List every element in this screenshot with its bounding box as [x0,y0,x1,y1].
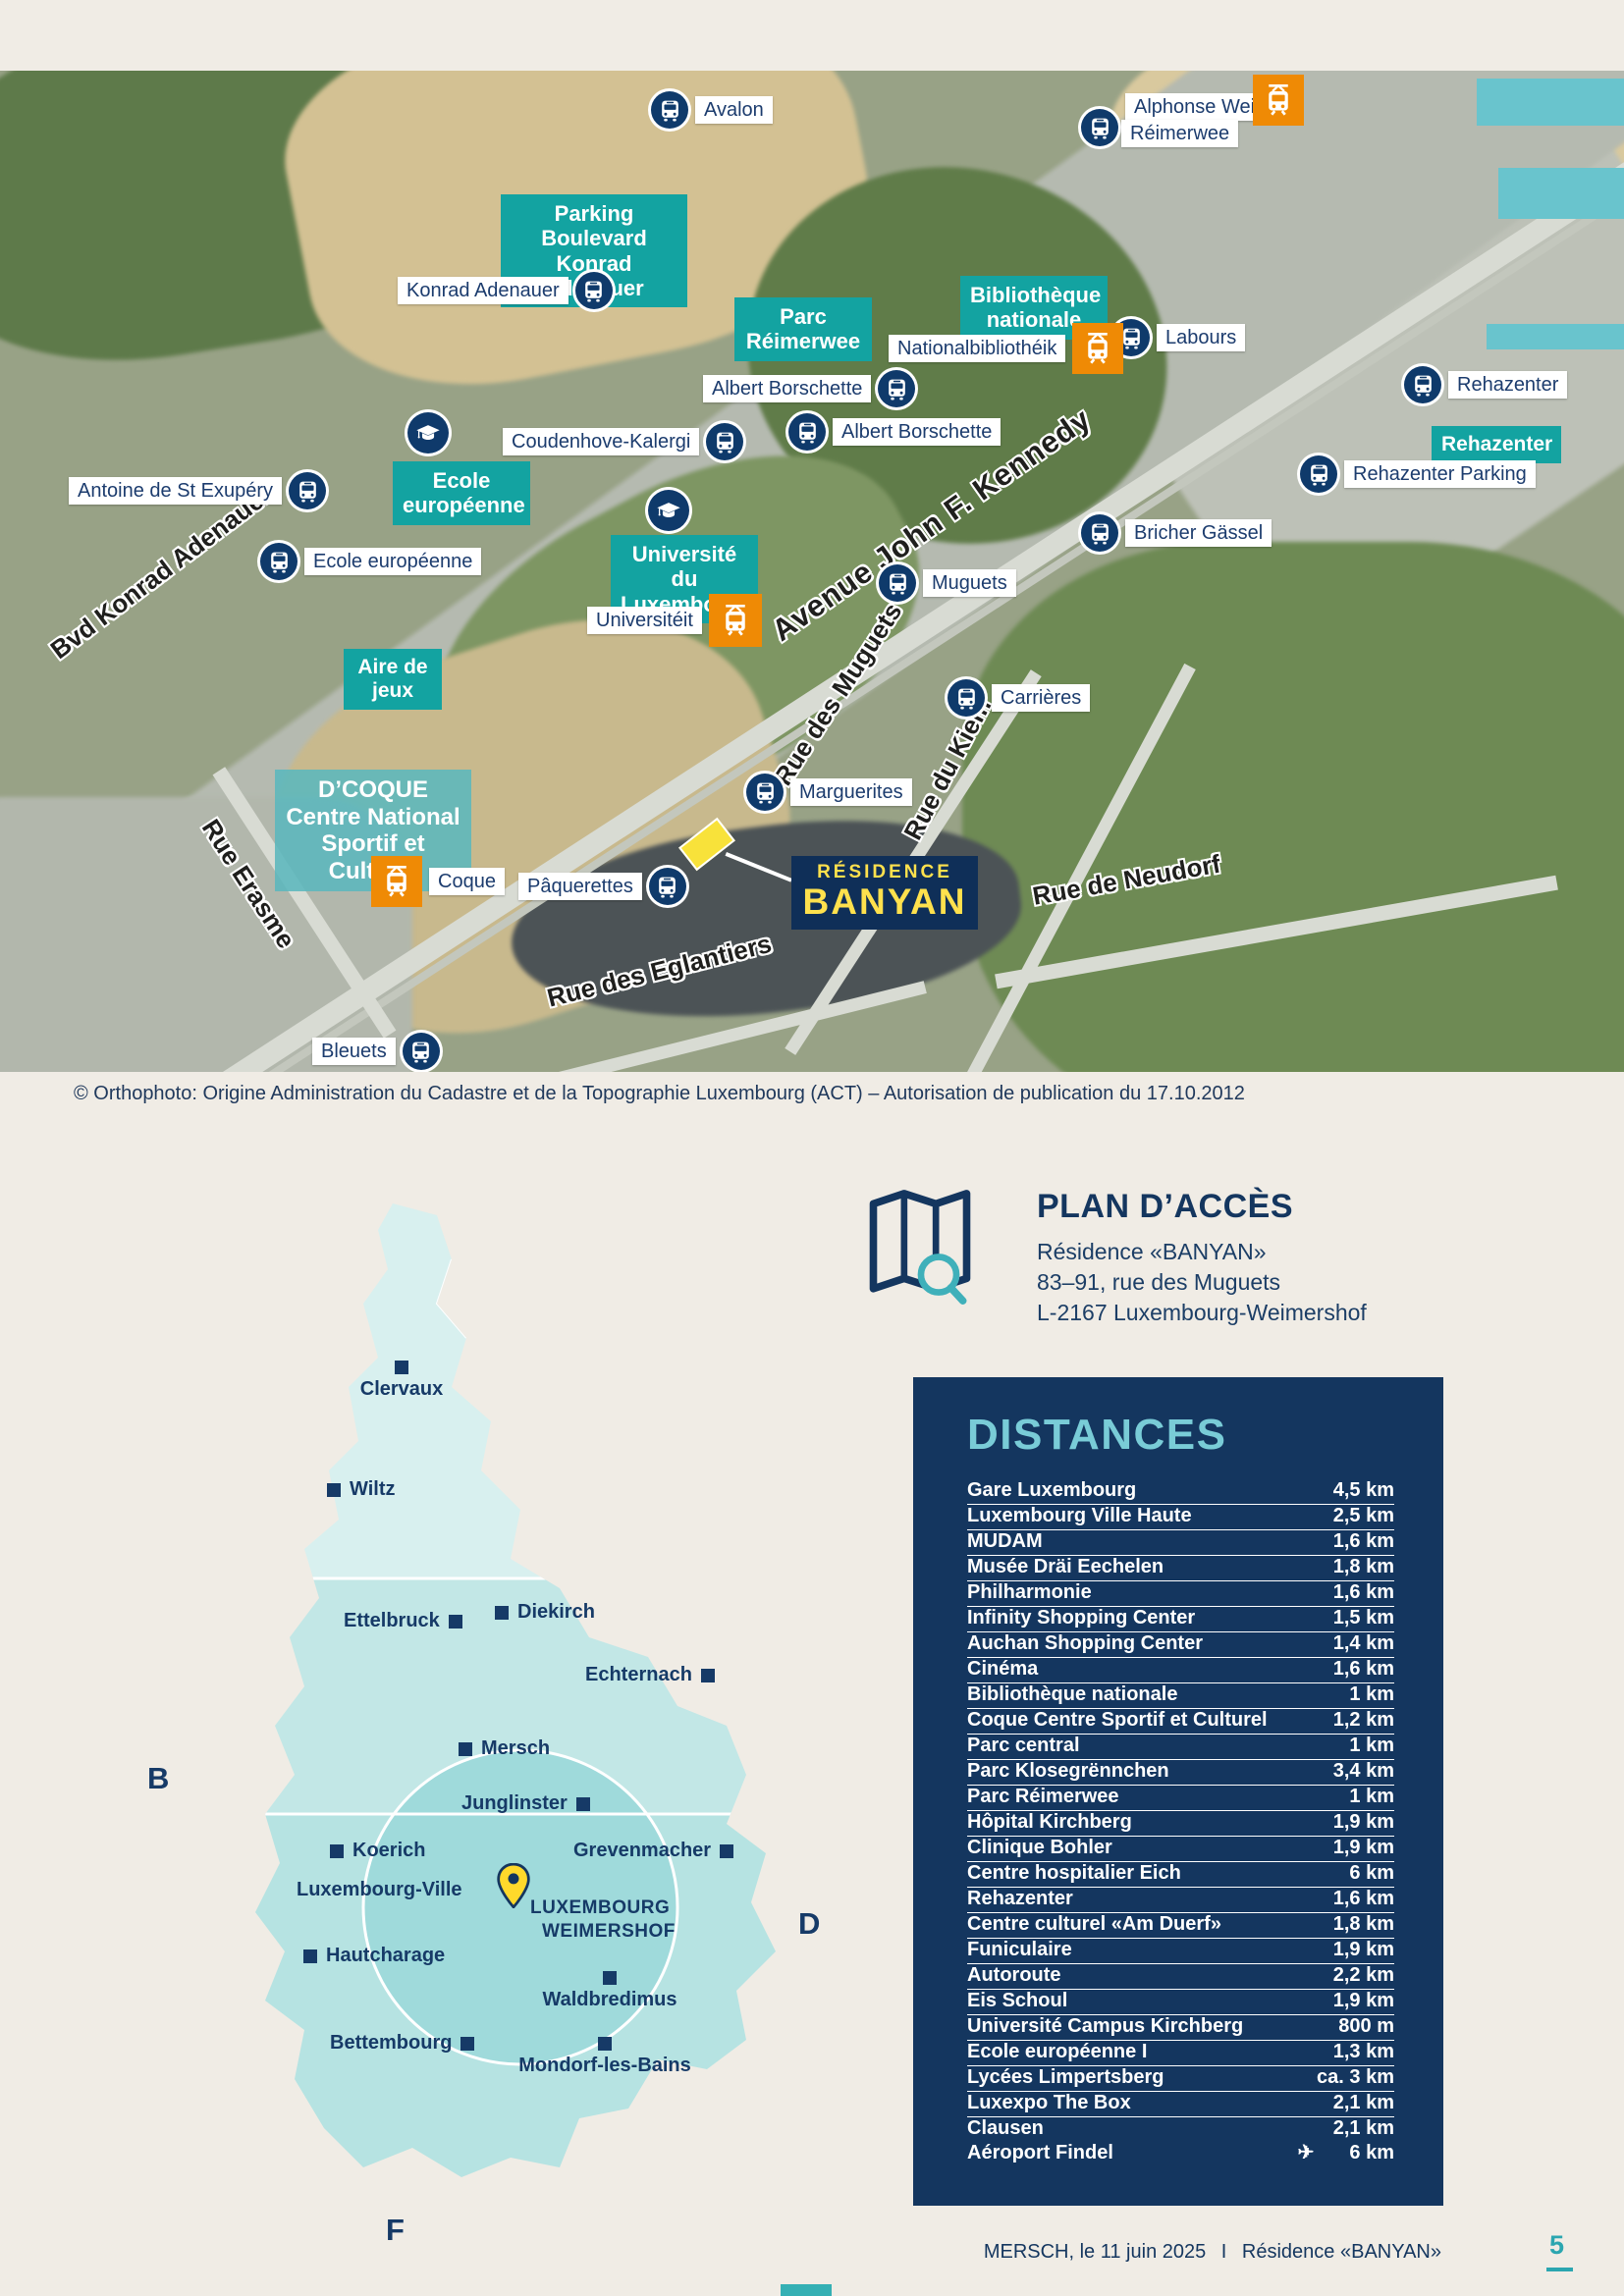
folded-map-icon [864,1184,976,1311]
bus-stop-labours: Labours [1112,319,1245,356]
distance-value: 1,9 km [1333,1812,1394,1833]
stop-label-reimerwee: Réimerwee [1121,120,1238,147]
distance-value: 1,8 km [1333,1557,1394,1577]
bus-stop-avalon: Avalon [651,91,773,129]
distance-name: Eis Schoul [967,1991,1067,2011]
city-mersch: Mersch [459,1737,550,1760]
bus-stop-albert-borschette-2: Albert Borschette [788,413,1001,451]
distance-name: Gare Luxembourg [967,1480,1136,1501]
bus-icon [879,564,916,602]
bus-icon [878,370,915,407]
stop-label: Nationalbibliothéik [889,335,1065,362]
distance-row: Université Campus Kirchberg 800 m [967,2015,1394,2041]
plane-icon: ✈ [1298,2143,1315,2163]
distance-row: Cinéma 1,6 km [967,1658,1394,1683]
city-waldbredimus: Waldbredimus [543,1971,677,2011]
place-line: Ecole [403,468,520,493]
bus-icon [1081,109,1118,146]
city-grevenmacher: Grevenmacher [573,1840,733,1862]
city-bettembourg: Bettembourg [330,2032,474,2055]
highlight-line1: LUXEMBOURG [530,1896,676,1920]
bus-stop-paquerettes: Pâquerettes [518,868,686,905]
distance-value: 2,5 km [1333,1506,1394,1526]
tram-icon [1072,323,1123,374]
teal-decoration [1487,324,1624,349]
city-label: Bettembourg [330,2032,452,2055]
stop-label: Universitéit [587,607,702,634]
footer-residence: Résidence «BANYAN» [1242,2241,1441,2263]
distances-table: DISTANCES Gare Luxembourg 4,5 km Luxembo… [913,1377,1443,2206]
stop-label: Albert Borschette [703,375,871,402]
distance-value: 1,6 km [1333,1659,1394,1680]
bus-stop-bleuets: Bleuets [312,1033,440,1070]
country-letter-france: F [386,2213,405,2248]
city-diekirch: Diekirch [495,1601,595,1624]
distance-value: 2,1 km [1333,2118,1394,2139]
distance-row: Ecole européenne I 1,3 km [967,2041,1394,2066]
city-square-icon [495,1606,509,1620]
distance-row: Parc central 1 km [967,1735,1394,1760]
bus-stop-carrieres: Carrières [947,679,1090,717]
distance-row: Luxexpo The Box 2,1 km [967,2092,1394,2117]
city-label: Junglinster [461,1792,568,1815]
distance-name: Ecole européenne I [967,2042,1147,2062]
bus-stop-rehazenter: Rehazenter [1404,366,1567,403]
distance-row: Auchan Shopping Center 1,4 km [967,1632,1394,1658]
stop-label: Coudenhove-Kalergi [503,428,699,455]
distance-row: Lycées Limpertsberg ca. 3 km [967,2066,1394,2092]
distances-title: DISTANCES [967,1411,1394,1460]
distance-name: Musée Dräi Eechelen [967,1557,1164,1577]
bus-stop-rehazenter-parking: Rehazenter Parking [1300,455,1536,493]
distance-value: 1 km [1349,1684,1394,1705]
distance-value: 1 km [1349,1787,1394,1807]
city-square-icon [603,1971,617,1985]
distance-value: 1,6 km [1333,1531,1394,1552]
distance-value: 1,5 km [1333,1608,1394,1629]
access-line3: L-2167 Luxembourg-Weimershof [1037,1298,1367,1328]
bus-stop-ecole-europeenne: Ecole européenne [260,543,481,580]
bus-icon [1404,366,1441,403]
distance-value: 800 m [1338,2016,1394,2037]
distance-row-airport: Aéroport Findel ✈ 6 km [967,2142,1394,2166]
stop-label: Muguets [923,569,1016,597]
distance-name: Parc Klosegrënnchen [967,1761,1169,1782]
city-square-icon [327,1483,341,1497]
city-label: Koerich [352,1840,425,1862]
distance-value: 1,9 km [1333,1991,1394,2011]
distance-name: Clausen [967,2118,1044,2139]
stop-label: Labours [1157,324,1245,351]
bus-icon [1081,514,1118,552]
access-line2: 83–91, rue des Muguets [1037,1267,1367,1298]
place-line: Bibliothèque [970,283,1098,307]
tram-icon [1253,75,1304,126]
city-echternach: Echternach [585,1664,715,1686]
city-square-icon [459,1742,472,1756]
distance-value: 2,2 km [1333,1965,1394,1986]
distance-value: 1,4 km [1333,1633,1394,1654]
bus-icon [706,423,743,460]
distances-rows: Gare Luxembourg 4,5 km Luxembourg Ville … [967,1479,1394,2142]
footer-date: MERSCH, le 11 juin 2025 [984,2241,1206,2263]
distance-row: Coque Centre Sportif et Culturel 1,2 km [967,1709,1394,1735]
distance-name: Funiculaire [967,1940,1072,1960]
city-square-icon [449,1615,462,1629]
place-line: jeux [353,679,432,703]
distance-value: 2,1 km [1333,2093,1394,2113]
bus-icon [575,272,613,309]
bus-stop-antoine-st-exupery: Antoine de St Exupéry [69,472,326,509]
city-wiltz: Wiltz [327,1478,395,1501]
distance-name: MUDAM [967,1531,1043,1552]
bus-icon [788,413,826,451]
city-label: Waldbredimus [542,1989,677,2011]
stop-label: Carrières [992,684,1090,712]
distance-name: Parc Réimerwee [967,1787,1119,1807]
distance-name: Infinity Shopping Center [967,1608,1195,1629]
place-line: Parc [744,304,862,329]
footer: MERSCH, le 11 juin 2025 I Résidence «BAN… [974,2241,1441,2264]
distance-name: Cinéma [967,1659,1038,1680]
stop-label: Antoine de St Exupéry [69,477,282,505]
weimershof-pin-icon [497,1863,530,1908]
distance-value: 1,9 km [1333,1940,1394,1960]
distance-row: Philharmonie 1,6 km [967,1581,1394,1607]
distance-value: 6 km [1349,1863,1394,1884]
city-label: Mondorf-les-Bains [518,2055,691,2077]
distance-row: Gare Luxembourg 4,5 km [967,1479,1394,1505]
stop-label: Albert Borschette [833,418,1001,446]
distance-name: Lycées Limpertsberg [967,2067,1164,2088]
footer-separator: I [1221,2241,1227,2263]
distance-value: 1 km [1349,1735,1394,1756]
city-square-icon [395,1361,408,1374]
distance-name: Philharmonie [967,1582,1092,1603]
country-letter-belgium: B [147,1761,169,1796]
distance-name: Centre hospitalier Eich [967,1863,1181,1884]
city-label: Echternach [585,1664,692,1686]
place-line: Parking Boulevard [511,201,677,251]
distance-value: 1,6 km [1333,1582,1394,1603]
distance-name: Clinique Bohler [967,1838,1112,1858]
bus-stop-albert-borschette-1: Albert Borschette [703,370,915,407]
teal-decoration [1477,79,1624,126]
distance-name: Auchan Shopping Center [967,1633,1203,1654]
bus-icon [746,774,784,811]
city-label: Ettelbruck [344,1610,440,1632]
distance-name: Centre culturel «Am Duerf» [967,1914,1221,1935]
city-label: Hautcharage [326,1945,445,1967]
access-title: PLAN D’ACCÈS [1037,1188,1293,1226]
stop-label: Marguerites [790,778,912,806]
city-luxembourg-ville: Luxembourg-Ville [297,1879,462,1901]
distance-name: Rehazenter [967,1889,1073,1909]
country-letter-germany: D [798,1906,820,1942]
distance-row: Clausen 2,1 km [967,2117,1394,2142]
teal-decoration [1498,168,1624,219]
weimershof-highlight-label: LUXEMBOURG WEIMERSHOF [530,1896,676,1944]
terrain-patch [962,542,1624,1072]
city-square-icon [576,1797,590,1811]
bus-stop-konrad-adenauer: Konrad Adenauer [398,272,613,309]
city-label: Wiltz [350,1478,395,1501]
place-ecole-europeenne: Ecole européenne [393,461,530,525]
place-line: Aire de [353,656,432,679]
stop-label: Bricher Gässel [1125,519,1272,547]
highlight-line2: WEIMERSHOF [530,1920,676,1944]
city-square-icon [303,1949,317,1963]
residence-banyan-label: RÉSIDENCE BANYAN [791,856,978,930]
city-label: Diekirch [517,1601,595,1624]
luxembourg-country-map [98,1176,805,2241]
distance-row: Centre culturel «Am Duerf» 1,8 km [967,1913,1394,1939]
distance-name: Luxembourg Ville Haute [967,1506,1192,1526]
bus-stop-coudenhove-kalergi: Coudenhove-Kalergi [503,423,743,460]
brochure-page: Avenue John F. Kennedy Bvd Konrad Adenau… [0,0,1624,2296]
bus-icon [947,679,985,717]
tram-stop-universiteit: Universitéit [587,594,762,647]
distance-row: Centre hospitalier Eich 6 km [967,1862,1394,1888]
city-koerich: Koerich [330,1840,425,1862]
tram-stop-nationalbibliotheik: Nationalbibliothéik [889,323,1123,374]
place-line: Centre National [285,804,461,831]
distance-value: ca. 3 km [1317,2067,1394,2088]
stop-label: Coque [429,868,505,895]
page-number: 5 [1549,2230,1564,2261]
stop-label: Avalon [695,96,773,124]
city-junglinster: Junglinster [461,1792,590,1815]
orthophoto-copyright: © Orthophoto: Origine Administration du … [74,1083,1245,1105]
residence-label-line2: BANYAN [795,883,974,922]
university-icon [648,490,689,531]
stop-label: Konrad Adenauer [398,277,568,304]
distance-name: Coque Centre Sportif et Culturel [967,1710,1268,1731]
stop-label: Bleuets [312,1038,396,1065]
distance-value: 1,9 km [1333,1838,1394,1858]
distance-row: Infinity Shopping Center 1,5 km [967,1607,1394,1632]
place-aire-de-jeux: Aire de jeux [344,649,442,710]
tram-stop-coque: Coque [371,856,505,907]
bus-icon [289,472,326,509]
distance-name: Parc central [967,1735,1080,1756]
distance-row: Rehazenter 1,6 km [967,1888,1394,1913]
city-clervaux: Clervaux [344,1361,460,1401]
distance-row: Bibliothèque nationale 1 km [967,1683,1394,1709]
city-label: Luxembourg-Ville [297,1879,462,1901]
stop-label: Pâquerettes [518,873,642,900]
distance-value: 1,8 km [1333,1914,1394,1935]
distance-row: Hôpital Kirchberg 1,9 km [967,1811,1394,1837]
distance-row: Musée Dräi Eechelen 1,8 km [967,1556,1394,1581]
distance-name: Aéroport Findel [967,2143,1113,2163]
stop-label: Rehazenter Parking [1344,460,1536,488]
city-square-icon [460,2037,474,2051]
stop-label: Ecole européenne [304,548,481,575]
distance-row: Parc Klosegrënnchen 3,4 km [967,1760,1394,1786]
distance-row: Eis Schoul 1,9 km [967,1990,1394,2015]
stop-label: Rehazenter [1448,371,1567,399]
tram-icon [709,594,762,647]
distance-row: Clinique Bohler 1,9 km [967,1837,1394,1862]
distance-value: 3,4 km [1333,1761,1394,1782]
distance-name: Université Campus Kirchberg [967,2016,1243,2037]
city-mondorf-les-bains: Mondorf-les-Bains [518,2037,691,2077]
school-icon [407,412,449,454]
place-parc-reimerwee: Parc Réimerwee [734,297,872,361]
residence-label-line1: RÉSIDENCE [795,862,974,883]
city-label: Grevenmacher [573,1840,711,1862]
city-ettelbruck: Ettelbruck [344,1610,462,1632]
distance-name: Autoroute [967,1965,1061,1986]
bus-icon [403,1033,440,1070]
distance-value: 1,6 km [1333,1889,1394,1909]
distance-row: MUDAM 1,6 km [967,1530,1394,1556]
distance-row: Autoroute 2,2 km [967,1964,1394,1990]
distance-value: 1,2 km [1333,1710,1394,1731]
distance-value: 1,3 km [1333,2042,1394,2062]
bus-stop-marguerites: Marguerites [746,774,912,811]
tram-icon [371,856,422,907]
bus-icon [260,543,298,580]
city-hautcharage: Hautcharage [303,1945,445,1967]
distance-name: Hôpital Kirchberg [967,1812,1132,1833]
distance-value: 4,5 km [1333,1480,1394,1501]
access-line1: Résidence «BANYAN» [1037,1237,1367,1267]
city-square-icon [330,1844,344,1858]
city-label: Mersch [481,1737,550,1760]
bus-icon [1300,455,1337,493]
place-line: Réimerwee [744,329,862,353]
access-address: Résidence «BANYAN» 83–91, rue des Muguet… [1037,1237,1367,1328]
page-number-underline [1546,2268,1573,2271]
place-line: D’COQUE [285,776,461,804]
bus-stop-bricher-gassel: Bricher Gässel [1081,514,1272,552]
distance-name: Bibliothèque nationale [967,1684,1177,1705]
city-square-icon [720,1844,733,1858]
distance-row: Luxembourg Ville Haute 2,5 km [967,1505,1394,1530]
distance-row: Funiculaire 1,9 km [967,1939,1394,1964]
place-line: européenne [403,493,520,517]
distance-row: Parc Réimerwee 1 km [967,1786,1394,1811]
city-label: Clervaux [360,1378,444,1401]
teal-bottom-tab [781,2284,832,2296]
bus-stop-muguets: Muguets [879,564,1016,602]
bus-icon [649,868,686,905]
bus-icon [651,91,688,129]
place-line: Université du [621,542,748,592]
distance-value: 6 km [1349,2143,1394,2163]
city-square-icon [701,1669,715,1682]
city-square-icon [598,2037,612,2051]
distance-name: Luxexpo The Box [967,2093,1131,2113]
